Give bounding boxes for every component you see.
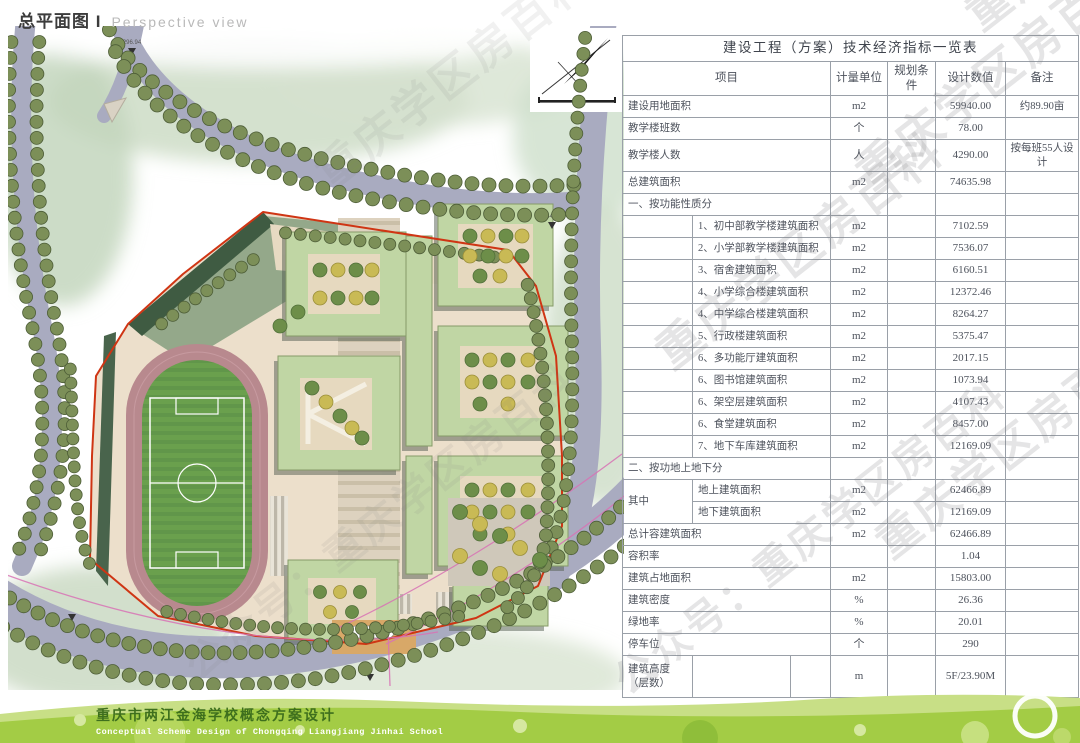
table-cell: 6、图书馆建筑面积 [693,370,831,392]
table-cell: % [831,590,888,612]
value-cell: 8457.00 [936,414,1006,436]
table-row: 1、初中部教学楼建筑面积m27102.59 [623,216,1079,238]
table-cell: m2 [831,370,888,392]
table-cell [888,436,936,458]
table-row: 绿地率%20.01 [623,612,1079,634]
table-cell: 6、多功能厅建筑面积 [693,348,831,370]
value-cell: 12372.46 [936,282,1006,304]
note-cell: 约89.90亩 [1006,96,1079,118]
table-row: 建设用地面积m259940.00约89.90亩 [623,96,1079,118]
note-cell [1006,458,1079,480]
note-cell [1006,260,1079,282]
table-row: 建筑占地面积m215803.00 [623,568,1079,590]
table-cell: 7、地下车库建筑面积 [693,436,831,458]
note-cell: 按每班55人设计 [1006,140,1079,172]
running-track [126,344,268,622]
note-cell [1006,634,1079,656]
page-title: 总平面图 IPerspective view [18,7,249,32]
table-cell: 建筑密度 [623,590,831,612]
table-cell: 人 [831,140,888,172]
note-cell [1006,348,1079,370]
table-cell: m2 [831,172,888,194]
note-cell [1006,612,1079,634]
table-cell: m2 [831,260,888,282]
note-cell [1006,590,1079,612]
table-cell [888,568,936,590]
table-cell [888,238,936,260]
value-cell: 12169.09 [936,436,1006,458]
table-cell [623,348,693,370]
table-header-row: 项目计量单位规划条件设计数值备注 [623,62,1079,96]
col-header: 备注 [1006,62,1079,96]
table-cell [888,502,936,524]
table-cell: m2 [831,414,888,436]
elevation-label: 296.94 [123,40,142,46]
value-cell: 6160.51 [936,260,1006,282]
table-cell [888,546,936,568]
table-cell: 地下建筑面积 [693,502,831,524]
table-cell: m2 [831,568,888,590]
table-cell: 教学楼班数 [623,118,831,140]
table-cell [831,546,888,568]
indicator-table-wrap: 建设工程（方案）技术经济指标一览表项目计量单位规划条件设计数值备注建设用地面积m… [622,35,1078,698]
note-cell [1006,392,1079,414]
site-plan-map: 244.50 296.94 264.08 [8,26,624,690]
table-cell [888,216,936,238]
table-cell: m2 [831,216,888,238]
value-cell: 78.00 [936,118,1006,140]
table-cell: 建设用地面积 [623,96,831,118]
table-row: 教学楼班数个78.00 [623,118,1079,140]
table-title: 建设工程（方案）技术经济指标一览表 [623,36,1079,62]
table-cell: 建筑占地面积 [623,568,831,590]
design-sheet-page: 总平面图 IPerspective view [0,0,1080,743]
table-cell [623,260,693,282]
table-cell: 5、行政楼建筑面积 [693,326,831,348]
table-cell: m2 [831,480,888,502]
value-cell: 4290.00 [936,140,1006,172]
note-cell [1006,238,1079,260]
note-cell [1006,118,1079,140]
page-title-cn: 总平面图 I [18,12,101,31]
table-cell [888,96,936,118]
value-cell: 1073.94 [936,370,1006,392]
value-cell: 12169.09 [936,502,1006,524]
footer-caption-cn: 重庆市两江金海学校概念方案设计 [96,705,336,725]
note-cell [1006,436,1079,458]
table-cell: 总建筑面积 [623,172,831,194]
table-cell: 容积率 [623,546,831,568]
note-cell [1006,216,1079,238]
table-cell: m2 [831,436,888,458]
value-cell: 20.01 [936,612,1006,634]
table-cell [623,370,693,392]
table-row: 总建筑面积m274635.98 [623,172,1079,194]
table-row: 教学楼人数人4290.00按每班55人设计 [623,140,1079,172]
table-cell [888,304,936,326]
table-row: 5、行政楼建筑面积m25375.47 [623,326,1079,348]
table-row: 4、中学综合楼建筑面积m28264.27 [623,304,1079,326]
table-row: 6、图书馆建筑面积m21073.94 [623,370,1079,392]
value-cell: 4107.43 [936,392,1006,414]
table-row: 总计容建筑面积m262466.89 [623,524,1079,546]
table-cell [831,458,888,480]
table-cell [888,172,936,194]
value-cell: 7102.59 [936,216,1006,238]
col-header: 规划条件 [888,62,936,96]
table-cell [888,260,936,282]
table-row: 容积率1.04 [623,546,1079,568]
table-cell [888,392,936,414]
table-cell [888,326,936,348]
table-cell: 2、小学部教学楼建筑面积 [693,238,831,260]
value-cell: 15803.00 [936,568,1006,590]
table-row: 二、按功地上地下分 [623,458,1079,480]
table-cell [623,304,693,326]
table-cell [623,216,693,238]
table-cell [888,458,936,480]
table-cell: 6、食堂建筑面积 [693,414,831,436]
table-cell [623,282,693,304]
table-cell: m2 [831,348,888,370]
note-cell [1006,194,1079,216]
table-row: 2、小学部教学楼建筑面积m27536.07 [623,238,1079,260]
table-cell [888,194,936,216]
table-cell [888,140,936,172]
value-cell: 7536.07 [936,238,1006,260]
note-cell [1006,304,1079,326]
table-cell [623,392,693,414]
value-cell: 62466.89 [936,524,1006,546]
table-row: 6、多功能厅建筑面积m22017.15 [623,348,1079,370]
note-cell [1006,524,1079,546]
table-row: 7、地下车库建筑面积m212169.09 [623,436,1079,458]
section-label: 二、按功地上地下分 [623,458,831,480]
table-cell [888,634,936,656]
table-cell: 4、小学综合楼建筑面积 [693,282,831,304]
footer-caption-en: Conceptual Scheme Design of Chongqing Li… [96,727,443,737]
table-row: 其中地上建筑面积m262466.89 [623,480,1079,502]
table-cell: m2 [831,392,888,414]
table-cell: 地上建筑面积 [693,480,831,502]
section-label: 一、按功能性质分 [623,194,831,216]
table-row: 停车位个290 [623,634,1079,656]
table-cell: m2 [831,524,888,546]
value-cell: 26.36 [936,590,1006,612]
note-cell [1006,414,1079,436]
indicator-table: 建设工程（方案）技术经济指标一览表项目计量单位规划条件设计数值备注建设用地面积m… [622,35,1079,698]
table-cell: 总计容建筑面积 [623,524,831,546]
value-cell: 5375.47 [936,326,1006,348]
note-cell [1006,480,1079,502]
table-cell [888,414,936,436]
col-header: 设计数值 [936,62,1006,96]
page-title-en: Perspective view [111,14,248,30]
col-header: 计量单位 [831,62,888,96]
table-cell: m2 [831,238,888,260]
value-cell [936,194,1006,216]
table-cell [888,282,936,304]
note-cell [1006,546,1079,568]
table-cell: 1、初中部教学楼建筑面积 [693,216,831,238]
table-cell [888,370,936,392]
table-cell [888,348,936,370]
table-cell [888,480,936,502]
value-cell: 74635.98 [936,172,1006,194]
table-cell: m2 [831,304,888,326]
value-cell: 2017.15 [936,348,1006,370]
table-cell [888,590,936,612]
table-cell [888,612,936,634]
table-row: 一、按功能性质分 [623,194,1079,216]
table-cell: m2 [831,96,888,118]
table-row: 6、架空层建筑面积m24107.43 [623,392,1079,414]
table-row: 4、小学综合楼建筑面积m212372.46 [623,282,1079,304]
note-cell [1006,172,1079,194]
table-title-row: 建设工程（方案）技术经济指标一览表 [623,36,1079,62]
note-cell [1006,502,1079,524]
table-cell: m2 [831,502,888,524]
table-cell: 个 [831,118,888,140]
note-cell [1006,282,1079,304]
note-cell [1006,568,1079,590]
value-cell: 62466.89 [936,480,1006,502]
table-cell: 绿地率 [623,612,831,634]
table-cell: 教学楼人数 [623,140,831,172]
table-cell: 停车位 [623,634,831,656]
table-cell [888,524,936,546]
note-cell [1006,326,1079,348]
table-cell: 4、中学综合楼建筑面积 [693,304,831,326]
value-cell [936,458,1006,480]
table-cell: 6、架空层建筑面积 [693,392,831,414]
value-cell: 290 [936,634,1006,656]
value-cell: 59940.00 [936,96,1006,118]
table-cell [623,326,693,348]
note-cell [1006,370,1079,392]
table-row: 6、食堂建筑面积m28457.00 [623,414,1079,436]
group-label: 其中 [623,480,693,524]
table-cell: m2 [831,326,888,348]
table-cell [623,238,693,260]
table-cell [888,118,936,140]
value-cell: 8264.27 [936,304,1006,326]
table-row: 建筑密度%26.36 [623,590,1079,612]
table-cell: 3、宿舍建筑面积 [693,260,831,282]
table-cell [831,194,888,216]
table-cell: % [831,612,888,634]
table-cell [623,436,693,458]
col-header: 项目 [623,62,831,96]
table-cell: m2 [831,282,888,304]
table-cell [623,414,693,436]
value-cell: 1.04 [936,546,1006,568]
table-cell: 个 [831,634,888,656]
table-row: 3、宿舍建筑面积m26160.51 [623,260,1079,282]
